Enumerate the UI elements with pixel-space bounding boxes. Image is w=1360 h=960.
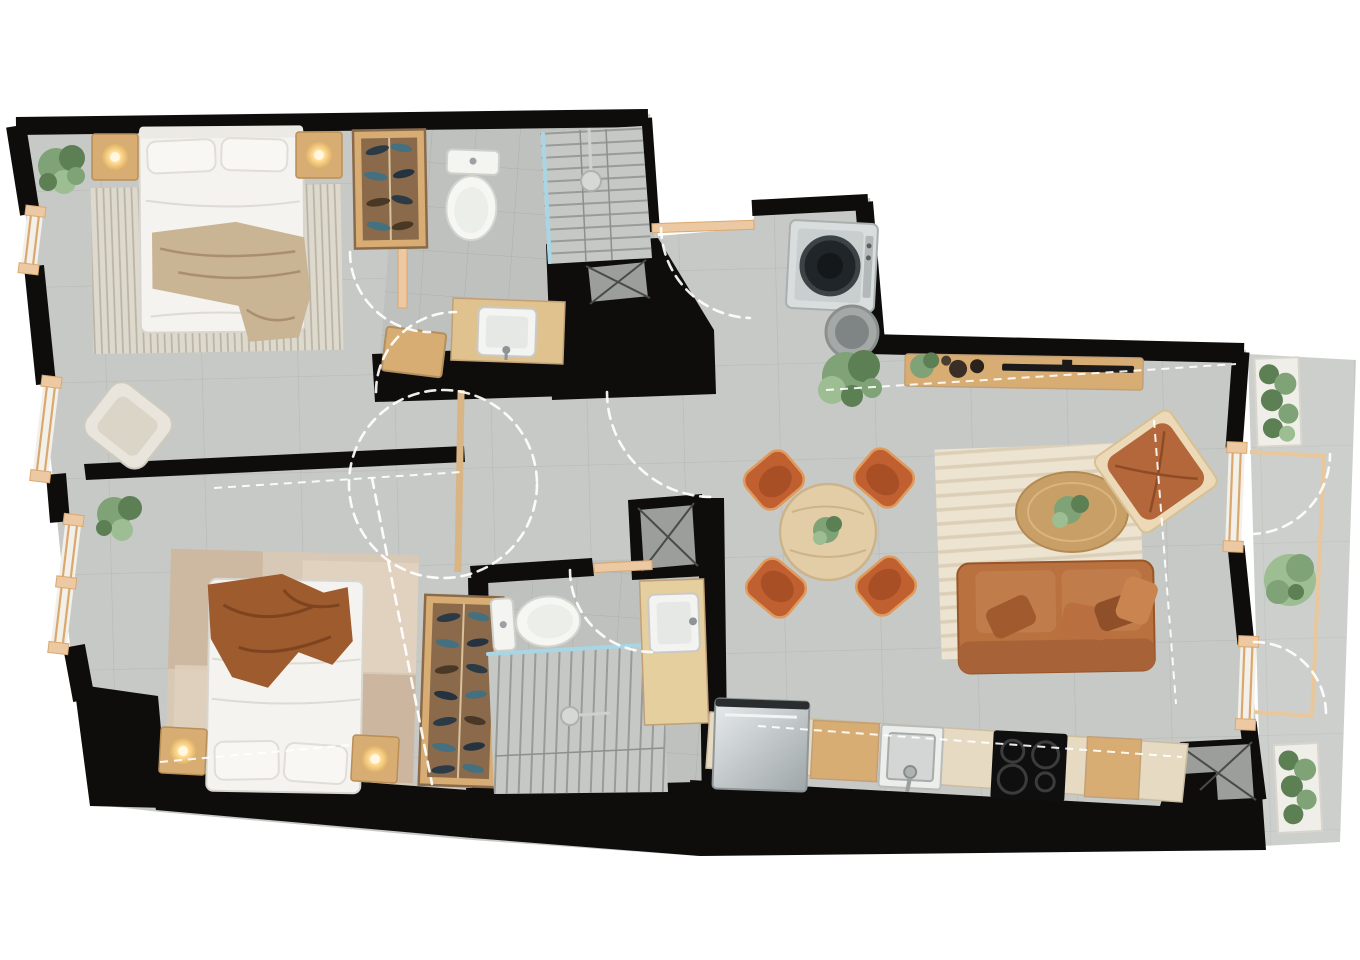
wall-left-a — [16, 126, 30, 214]
vanity-bath1 — [451, 298, 565, 364]
sofa-backrest — [958, 638, 1155, 673]
shower-bath2 — [488, 644, 668, 794]
sofa — [957, 560, 1161, 674]
sideboard-tv — [905, 352, 1144, 390]
bed-1-pillow-right — [221, 138, 288, 172]
fridge — [712, 698, 809, 791]
wardrobe-bedroom-1 — [353, 129, 427, 248]
floor-plan-page — [0, 0, 1360, 960]
bed-2 — [204, 573, 364, 794]
wall-right-a — [1234, 352, 1241, 448]
tv-stand-icon — [1062, 360, 1072, 366]
shower-bath1 — [540, 126, 652, 264]
planter-box-top — [1254, 357, 1301, 446]
toilet-bath1 — [444, 149, 499, 241]
kitchen-cabinet-right — [1084, 737, 1141, 800]
wall-laundry-top — [752, 202, 868, 208]
kitchen-cabinet-left — [811, 720, 880, 781]
wall-left-c — [56, 474, 60, 522]
balcony-bush — [1264, 554, 1316, 606]
nightstand-1-right — [296, 132, 342, 178]
shower-head-icon — [561, 707, 579, 725]
washing-machine — [786, 220, 878, 312]
wall-top — [16, 118, 648, 126]
wall-left-d — [74, 646, 84, 700]
bath1-door-leaf — [382, 327, 447, 378]
shower-head-icon — [581, 171, 601, 191]
bed-1-pillow-left — [147, 139, 216, 174]
bed-1 — [139, 125, 311, 342]
wall-left-b — [34, 266, 46, 384]
shaft-bath1 — [586, 260, 650, 304]
nightstand-2-left — [159, 727, 207, 775]
laundry-basket — [826, 306, 878, 358]
bed-2-pillow-left — [214, 741, 279, 780]
wall-corner-bottom-left — [74, 684, 168, 808]
planter-box-bottom — [1274, 743, 1323, 833]
wall-right-b — [1236, 546, 1246, 644]
nightstand-1-left — [92, 134, 138, 180]
floor-plan-canvas — [0, 0, 1360, 960]
wall-living-top — [868, 344, 1244, 353]
nightstand-2-right — [351, 735, 399, 783]
cooktop — [990, 730, 1067, 802]
threshold-bath1-door — [398, 242, 407, 308]
faucet-icon — [904, 766, 917, 779]
bed-1-headboard — [139, 125, 303, 138]
